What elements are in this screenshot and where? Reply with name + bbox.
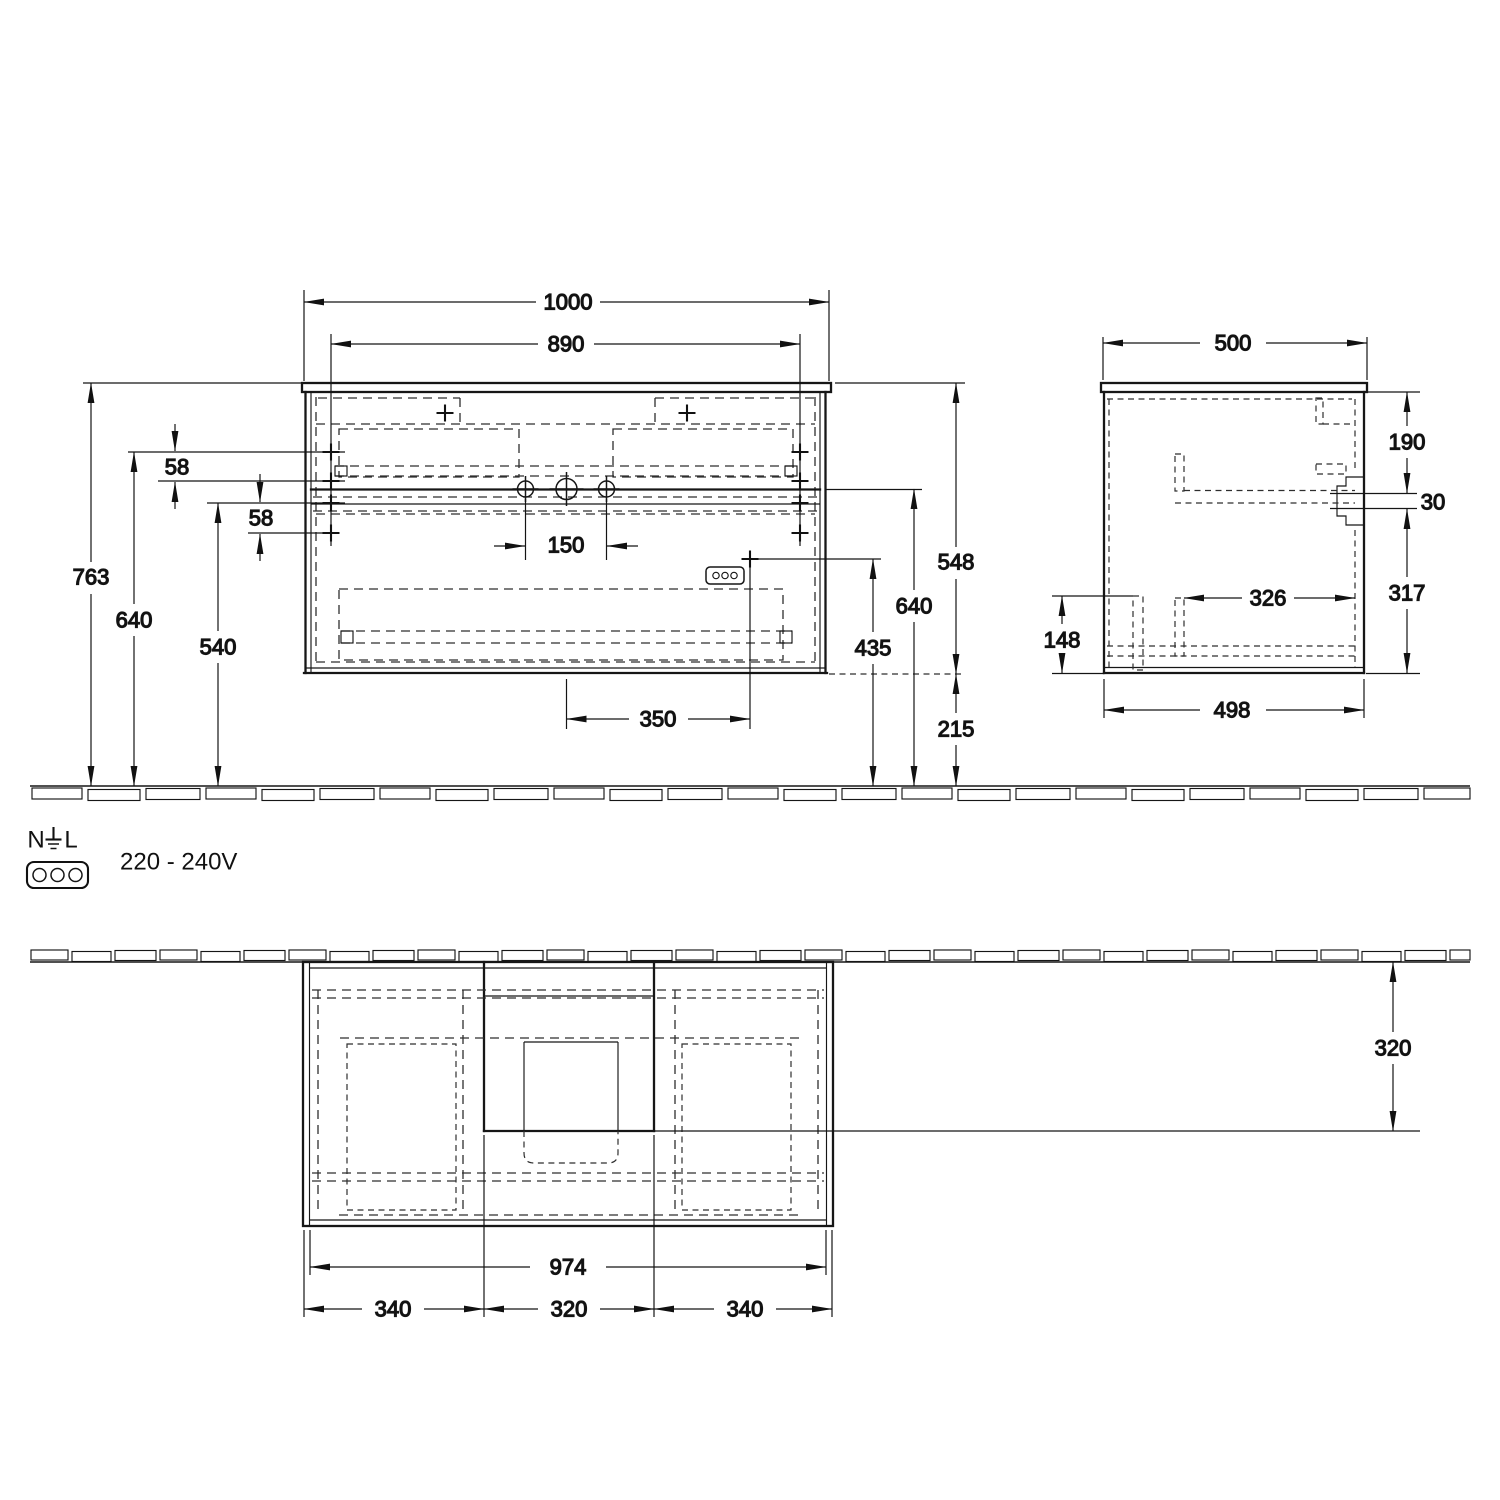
hatch-brick — [728, 788, 778, 799]
hatch-brick — [1321, 950, 1358, 960]
plan-extension-lines — [304, 1131, 1420, 1317]
hatch-brick — [934, 950, 971, 960]
hatch-brick — [784, 790, 836, 801]
hatch-brick — [1018, 951, 1059, 961]
plan-view: 320 974 340 320 340 — [303, 962, 1420, 1322]
plan-dimensions: 320 974 340 320 340 — [304, 962, 1411, 1322]
hatch-brick — [502, 951, 543, 961]
dim-height-upper-fix: 640 — [116, 608, 153, 633]
hatch-brick — [1192, 950, 1229, 960]
hatch-brick — [160, 950, 197, 960]
plan-outline — [303, 962, 833, 1226]
hatch-brick — [668, 789, 722, 800]
hatch-brick — [459, 952, 498, 962]
dim-depth-body: 498 — [1214, 698, 1251, 723]
technical-drawing-page: 1000 890 58 58 763 640 540 150 3 — [0, 0, 1500, 1500]
hatch-brick — [902, 788, 952, 799]
hatch-brick — [676, 950, 713, 960]
hatch-brick — [1016, 789, 1070, 800]
front-hidden-lines — [311, 397, 820, 666]
socket-symbol-front — [706, 567, 744, 584]
hatch-brick — [1132, 790, 1184, 801]
hatch-brick — [588, 952, 627, 962]
front-extension-lines — [83, 290, 965, 729]
side-hidden-lines — [1107, 398, 1355, 670]
dim-clearance-bottom: 215 — [938, 717, 975, 742]
dim-segment-left: 340 — [375, 1297, 412, 1322]
hatch-brick — [1450, 950, 1470, 960]
hatch-brick — [289, 950, 326, 960]
hatch-brick — [88, 790, 140, 801]
hatch-brick — [1405, 951, 1446, 961]
dim-segment-right: 340 — [727, 1297, 764, 1322]
side-section-view: 500 190 30 317 326 148 498 — [1044, 331, 1446, 723]
dim-offset-top: 58 — [165, 455, 189, 480]
hatch-brick — [846, 952, 885, 962]
live-label: L — [64, 827, 77, 854]
hatch-brick — [262, 790, 314, 801]
dim-width-body: 974 — [550, 1255, 587, 1280]
dim-inner-depth: 326 — [1250, 586, 1287, 611]
dim-depth-total: 500 — [1215, 331, 1252, 356]
hatch-brick — [1276, 951, 1317, 961]
hatch-brick — [1362, 952, 1401, 962]
hatch-brick — [610, 790, 662, 801]
hatch-brick — [330, 952, 369, 962]
hatch-brick — [494, 789, 548, 800]
hatch-brick — [631, 951, 672, 961]
wall-hatch — [30, 950, 1470, 962]
dim-offset-bottom: 58 — [249, 506, 273, 531]
hatch-brick — [547, 950, 584, 960]
hatch-brick — [244, 951, 285, 961]
hatch-brick — [201, 952, 240, 962]
hatch-brick — [958, 790, 1010, 801]
hatch-brick — [32, 788, 82, 799]
hatch-brick — [760, 951, 801, 961]
countertop — [302, 383, 831, 392]
hatch-brick — [380, 788, 430, 799]
three-pin-socket-icon — [27, 862, 88, 888]
front-dimensions: 1000 890 58 58 763 640 540 150 3 — [73, 290, 975, 787]
plan-hidden-lines — [312, 990, 824, 1215]
hatch-brick — [1104, 952, 1143, 962]
hatch-brick — [373, 951, 414, 961]
dim-recess-bottom: 317 — [1389, 581, 1426, 606]
faucet-hole-icons — [513, 472, 620, 506]
hatch-brick — [1063, 950, 1100, 960]
floor-hatch — [30, 786, 1470, 801]
hatch-brick — [842, 789, 896, 800]
hatch-brick — [805, 950, 842, 960]
dim-cabinet-height: 548 — [938, 550, 975, 575]
dim-recess-top: 190 — [1389, 430, 1426, 455]
hatch-brick — [975, 952, 1014, 962]
earth-ground-icon — [46, 827, 62, 849]
dim-height-lower-fix: 540 — [200, 635, 237, 660]
hatch-brick — [1233, 952, 1272, 962]
dim-height-total: 763 — [73, 565, 110, 590]
basin-recess — [484, 962, 654, 1163]
hatch-brick — [1424, 788, 1470, 799]
electrical-spec: N L 220 - 240V — [27, 827, 237, 889]
hatch-brick — [1076, 788, 1126, 799]
hatch-brick — [115, 951, 156, 961]
hatch-brick — [206, 788, 256, 799]
hatch-brick — [146, 789, 200, 800]
hatch-brick — [418, 950, 455, 960]
hatch-brick — [31, 950, 68, 960]
vanity-unit-dimension-drawing: 1000 890 58 58 763 640 540 150 3 — [0, 0, 1500, 1500]
neutral-label: N — [27, 827, 44, 854]
dim-segment-center: 320 — [551, 1297, 588, 1322]
dim-worktop-ref: 640 — [896, 594, 933, 619]
dim-width-total: 1000 — [544, 290, 593, 315]
countertop-side — [1101, 383, 1367, 392]
hatch-brick — [72, 952, 111, 962]
hatch-brick — [436, 790, 488, 801]
voltage-label: 220 - 240V — [120, 849, 237, 876]
hatch-brick — [320, 789, 374, 800]
dim-tap-spacing: 150 — [548, 533, 585, 558]
dim-recess-gap: 30 — [1421, 490, 1445, 515]
dim-socket-offset: 350 — [640, 707, 677, 732]
front-elevation-view: 1000 890 58 58 763 640 540 150 3 — [73, 290, 975, 787]
drain-outline — [524, 1131, 618, 1163]
hatch-brick — [717, 952, 756, 962]
hatch-brick — [1190, 789, 1244, 800]
hatch-brick — [889, 951, 930, 961]
hatch-brick — [1364, 789, 1418, 800]
hatch-brick — [1306, 790, 1358, 801]
hatch-brick — [1147, 951, 1188, 961]
dim-socket-height: 435 — [855, 636, 892, 661]
hatch-brick — [1250, 788, 1300, 799]
hatch-brick — [554, 788, 604, 799]
dim-basin-depth: 320 — [1375, 1036, 1412, 1061]
dim-width-mounting: 890 — [548, 332, 585, 357]
dim-back-cutout-height: 148 — [1044, 628, 1081, 653]
